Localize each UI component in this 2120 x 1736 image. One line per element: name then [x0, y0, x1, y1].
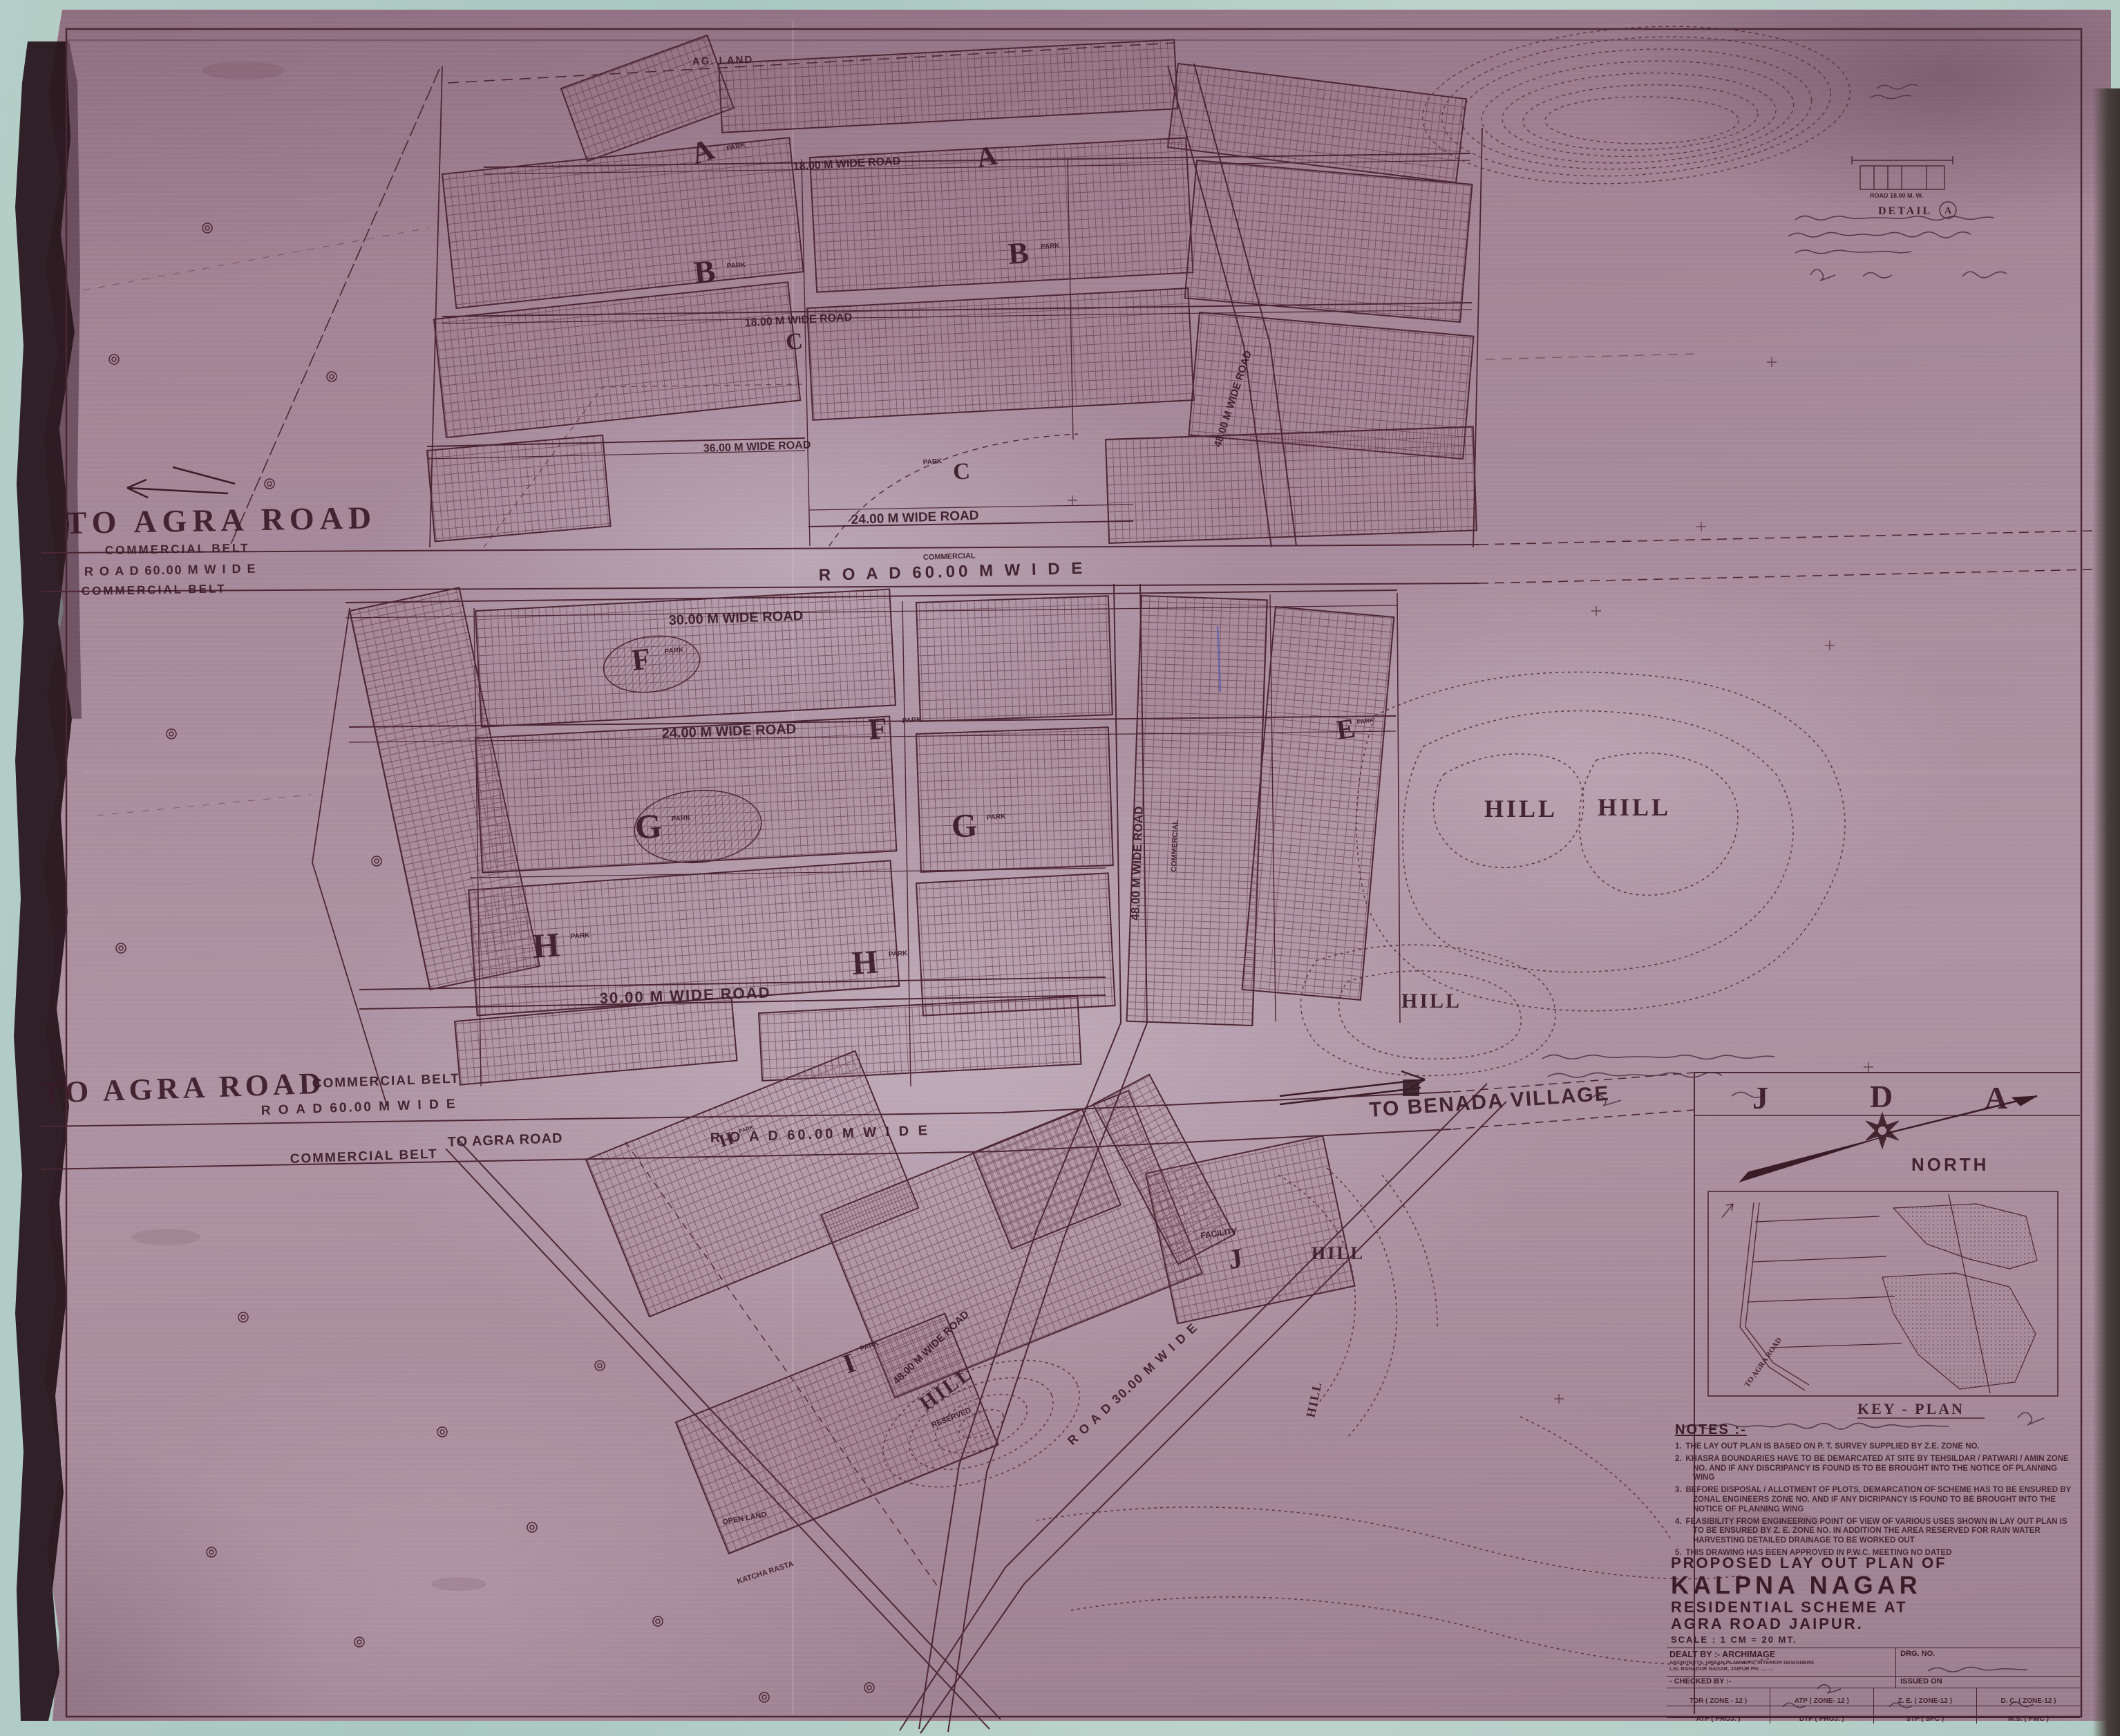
- well-symbol: [653, 1616, 663, 1626]
- jda-letter-j: J: [1752, 1080, 1768, 1115]
- block-g-1: G: [634, 806, 663, 847]
- dealt-by-sub1: ARCHITECTS, URBAN PLANNERS, INTERIOR DES…: [1669, 1659, 1893, 1666]
- jda-letter-d: D: [1870, 1079, 1893, 1114]
- park-c-2: PARK: [922, 457, 943, 466]
- commercial-belt-top: COMMERCIAL BELT: [105, 541, 250, 557]
- commercial-belt-top-2: COMMERCIAL BELT: [82, 582, 227, 598]
- dealt-by: DEALT BY :- ARCHIMAGE: [1669, 1650, 1893, 1659]
- block-b-2: B: [1007, 236, 1030, 271]
- commercial-strip-h: COMMERCIAL: [923, 551, 976, 562]
- notes-block: NOTES :- THE LAY OUT PLAN IS BASED ON P.…: [1675, 1422, 2080, 1561]
- plus-mark: [1554, 1394, 1564, 1404]
- note-item: FEASIBILITY FROM ENGINEERING POINT OF VI…: [1675, 1518, 2080, 1546]
- detail-label: DETAIL: [1878, 205, 1932, 217]
- commercial-belt-bl-1: COMMERCIAL BELT: [312, 1072, 460, 1091]
- torn-paper-edge: [14, 41, 82, 1721]
- sig-cell: STP ( SPC ): [1873, 1706, 1977, 1724]
- sig-cell: Z. E. ( ZONE-12 ): [1873, 1688, 1977, 1706]
- sig-cell: ATP ( ZONE- 12 ): [1770, 1688, 1874, 1706]
- ag-land: AG. LAND: [692, 54, 754, 68]
- detail-a: A: [1944, 206, 1952, 216]
- title-line-3: RESIDENTIAL SCHEME AT: [1667, 1599, 2080, 1616]
- title-line-1: PROPOSED LAY OUT PLAN OF: [1667, 1552, 2080, 1572]
- block-b-1: B: [692, 253, 717, 290]
- keyplan-to-agra-road: TO AGRA ROAD: [1743, 1336, 1783, 1388]
- sig-cell: M.S. ( PWC ): [1977, 1706, 2081, 1724]
- plus-mark: [1825, 641, 1835, 650]
- well-symbol: [527, 1522, 537, 1532]
- checked-by-label: - CHECKED BY :-: [1667, 1677, 1895, 1688]
- notes-list: THE LAY OUT PLAN IS BASED ON P. T. SURVE…: [1675, 1442, 2080, 1558]
- road-60m-top: R O A D 60.00 M W I D E: [84, 562, 257, 578]
- commercial-belt-bl-2: COMMERCIAL BELT: [290, 1147, 438, 1167]
- north-label: NORTH: [1911, 1154, 1989, 1175]
- well-symbol: [354, 1637, 364, 1647]
- block-f-2: F: [867, 711, 888, 746]
- well-symbol: [116, 943, 126, 953]
- block-f-1: F: [630, 641, 652, 677]
- block-c-2: C: [952, 458, 971, 485]
- note-item: KHASRA BOUNDARIES HAVE TO BE DEMARCATED …: [1675, 1455, 2080, 1483]
- signature-table: TDR ( ZONE - 12 ) ATP ( ZONE- 12 ) Z. E.…: [1667, 1688, 2080, 1724]
- title-line-4: AGRA ROAD JAIPUR.: [1667, 1616, 2080, 1632]
- hill-label-6: HILL: [1303, 1380, 1325, 1419]
- drg-no-label: DRG. NO.: [1895, 1648, 2080, 1676]
- terraced-contours: [1417, 13, 1855, 198]
- hill-label-2: HILL: [1598, 793, 1671, 821]
- road-60m-center: R O A D 60.00 M W I D E: [818, 559, 1086, 585]
- hill-label-4: HILL: [1312, 1243, 1365, 1263]
- plus-mark: [1864, 1062, 1873, 1072]
- well-symbol: [202, 223, 212, 233]
- park-f-2: PARK: [902, 716, 922, 725]
- well-symbol: [238, 1312, 248, 1322]
- block-g-2: G: [950, 806, 978, 845]
- hill-label-3: HILL: [1401, 990, 1461, 1012]
- well-symbol: [864, 1683, 874, 1692]
- park-b-2: PARK: [1040, 242, 1060, 251]
- well-symbol: [109, 355, 119, 364]
- title-block: PROPOSED LAY OUT PLAN OF KALPNA NAGAR RE…: [1667, 1552, 2080, 1718]
- well-symbol: [437, 1427, 447, 1437]
- to-agra-road-top: TO AGRA ROAD: [65, 500, 377, 540]
- scale-note: SCALE : 1 CM = 20 MT.: [1667, 1632, 2080, 1646]
- sig-cell: TDR ( ZONE - 12 ): [1667, 1688, 1770, 1706]
- park-h-2: PARK: [888, 950, 908, 959]
- plot-blocks: [350, 35, 1477, 1554]
- issued-on-label: ISSUED ON: [1895, 1677, 2080, 1688]
- plus-mark: [1591, 606, 1601, 616]
- note-item: THE LAY OUT PLAN IS BASED ON P. T. SURVE…: [1675, 1442, 2080, 1452]
- katcha-rasta: KATCHA RASTA: [736, 1560, 795, 1586]
- plus-mark: [1767, 357, 1777, 367]
- road-36m: 36.00 M WIDE ROAD: [703, 440, 811, 455]
- block-h-1: H: [531, 925, 561, 965]
- well-symbol: [167, 729, 176, 739]
- sig-cell: DTP ( PROJ. ): [1770, 1706, 1874, 1724]
- notes-heading: NOTES :-: [1675, 1422, 2080, 1438]
- park-g-2: PARK: [986, 813, 1006, 822]
- well-symbol: [265, 479, 274, 489]
- park-g-1: PARK: [671, 814, 691, 823]
- sig-cell: ATP ( PROJ. ): [1667, 1706, 1770, 1724]
- well-symbol: [595, 1361, 605, 1370]
- block-h-2: H: [851, 943, 879, 981]
- park-h-1: PARK: [570, 932, 590, 941]
- well-symbol: [327, 372, 337, 381]
- detail-road: ROAD 18.00 M. W.: [1870, 192, 1923, 199]
- note-item: BEFORE DISPOSAL / ALLOTMENT OF PLOTS, DE…: [1675, 1486, 2080, 1514]
- well-symbol: [372, 856, 381, 866]
- scanned-blueprint-page: TO AGRA ROADCOMMERCIAL BELTR O A D 60.00…: [0, 0, 2120, 1736]
- well-symbol: [207, 1547, 216, 1557]
- dealt-by-sub2: LAL BAHADUR NAGAR, JAIPUR PH. .........: [1669, 1666, 1893, 1672]
- jda-letter-a: A: [1985, 1080, 2007, 1115]
- hill-label-1: HILL: [1484, 795, 1558, 822]
- well-symbol: [759, 1692, 769, 1702]
- key-plan-label: KEY - PLAN: [1857, 1400, 1965, 1417]
- to-agra-road-bl-2: TO AGRA ROAD: [447, 1131, 562, 1150]
- plus-mark: [1696, 522, 1706, 531]
- sig-cell: D. C. ( ZONE-12 ): [1977, 1688, 2081, 1706]
- block-c-1: C: [785, 328, 804, 355]
- park-b-1: PARK: [726, 261, 746, 270]
- plus-mark: [1068, 496, 1077, 505]
- scheme-name: KALPNA NAGAR: [1667, 1572, 2080, 1599]
- to-agra-arrow: [127, 467, 235, 498]
